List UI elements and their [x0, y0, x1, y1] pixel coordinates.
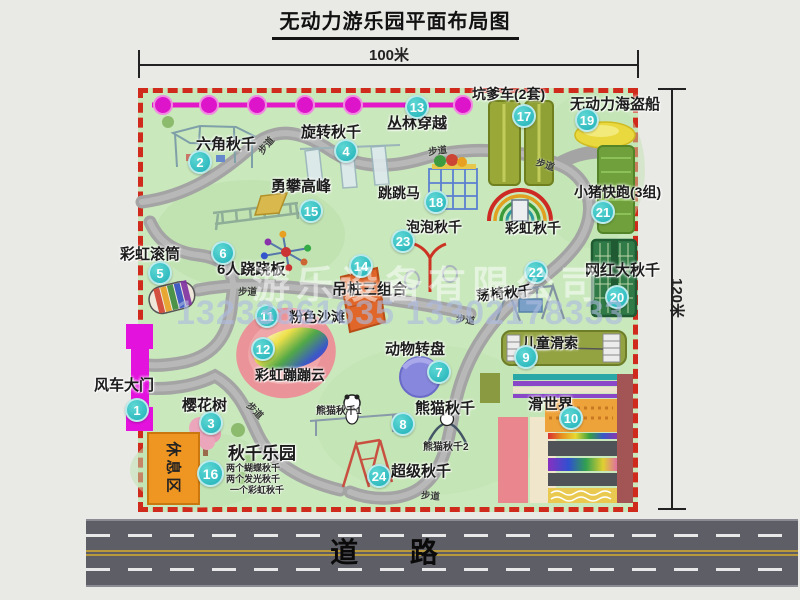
label-piggy-run: 小猪快跑(3组): [574, 182, 661, 202]
label-pit-car: 坑爹车(2套): [472, 84, 545, 104]
badge-4: 4: [334, 139, 358, 163]
dimension-height-tick-top: [658, 88, 686, 90]
label-climbing-peak: 勇攀高峰: [271, 175, 331, 196]
label-animal-turntable: 动物转盘: [385, 338, 445, 359]
badge-5: 5: [148, 261, 172, 285]
badge-16: 16: [197, 460, 224, 487]
label-rainbow-swing: 彩虹秋千: [505, 218, 561, 238]
label-jumping-horse: 跳跳马: [378, 183, 420, 203]
label-big-swing: 网红大秋千: [585, 259, 660, 280]
rainbow-roller-icon: [146, 279, 197, 316]
label-super-swing: 超级秋千: [391, 460, 451, 481]
badge-22: 22: [524, 260, 548, 284]
badge-21: 21: [591, 200, 615, 224]
label-hanging-pile: 吊桩三组合: [332, 278, 407, 299]
dimension-width-line: [139, 64, 639, 66]
sublabel-swing-note-3: 一个彩虹秋千: [230, 483, 284, 496]
label-rainbow-cloud: 彩虹蹦蹦云: [255, 365, 325, 385]
badge-7: 7: [427, 360, 451, 384]
badge-8: 8: [391, 412, 415, 436]
dimension-width-label: 100米: [339, 44, 439, 65]
badge-1: 1: [125, 398, 149, 422]
badge-2: 2: [188, 150, 212, 174]
walkway-label: 步道: [427, 142, 448, 159]
badge-17: 17: [512, 104, 536, 128]
road-label: 道 路: [255, 531, 535, 571]
badge-14: 14: [349, 254, 373, 278]
screenshot-stage: 无动力游乐园平面布局图 100米 120米: [0, 0, 800, 600]
badge-9: 9: [514, 345, 538, 369]
badge-6: 6: [211, 241, 235, 265]
walkway-label: 步道: [238, 284, 257, 298]
label-bubble-swing: 泡泡秋千: [406, 217, 462, 237]
badge-12: 12: [251, 337, 275, 361]
dimension-height-tick-bottom: [658, 508, 686, 510]
bubble-swing-icon: [405, 244, 457, 292]
page-title-text: 无动力游乐园平面布局图: [272, 5, 519, 40]
badge-23: 23: [391, 229, 415, 253]
page-title: 无动力游乐园平面布局图: [0, 5, 790, 40]
badge-3: 3: [199, 411, 223, 435]
badge-15: 15: [299, 199, 323, 223]
walkway-label: 步道: [420, 487, 440, 503]
sublabel-panda-swing-2: 熊猫秋千2: [423, 438, 469, 453]
label-pink-beach: 粉色沙滩: [289, 307, 345, 327]
rest-area-label: 休息区: [163, 441, 184, 495]
walkway-label: 步道: [455, 311, 476, 328]
dimension-height-label: 120米: [667, 278, 688, 318]
badge-19: 19: [575, 108, 599, 132]
badge-24: 24: [367, 464, 391, 488]
badge-13: 13: [405, 95, 429, 119]
label-panda-swing: 熊猫秋千: [415, 397, 475, 418]
badge-11: 11: [255, 304, 279, 328]
badge-10: 10: [559, 406, 583, 430]
badge-18: 18: [424, 190, 448, 214]
dimension-width-tick-left: [138, 50, 140, 78]
rest-area: 休息区: [147, 432, 200, 505]
label-rainbow-roller: 彩虹滚筒: [120, 243, 180, 264]
badge-20: 20: [605, 285, 629, 309]
dimension-width-tick-right: [637, 50, 639, 78]
sublabel-panda-swing-1: 熊猫秋千1: [316, 402, 362, 417]
label-rotating-swing: 旋转秋千: [301, 121, 361, 142]
label-windmill-gate: 风车大门: [94, 374, 154, 395]
